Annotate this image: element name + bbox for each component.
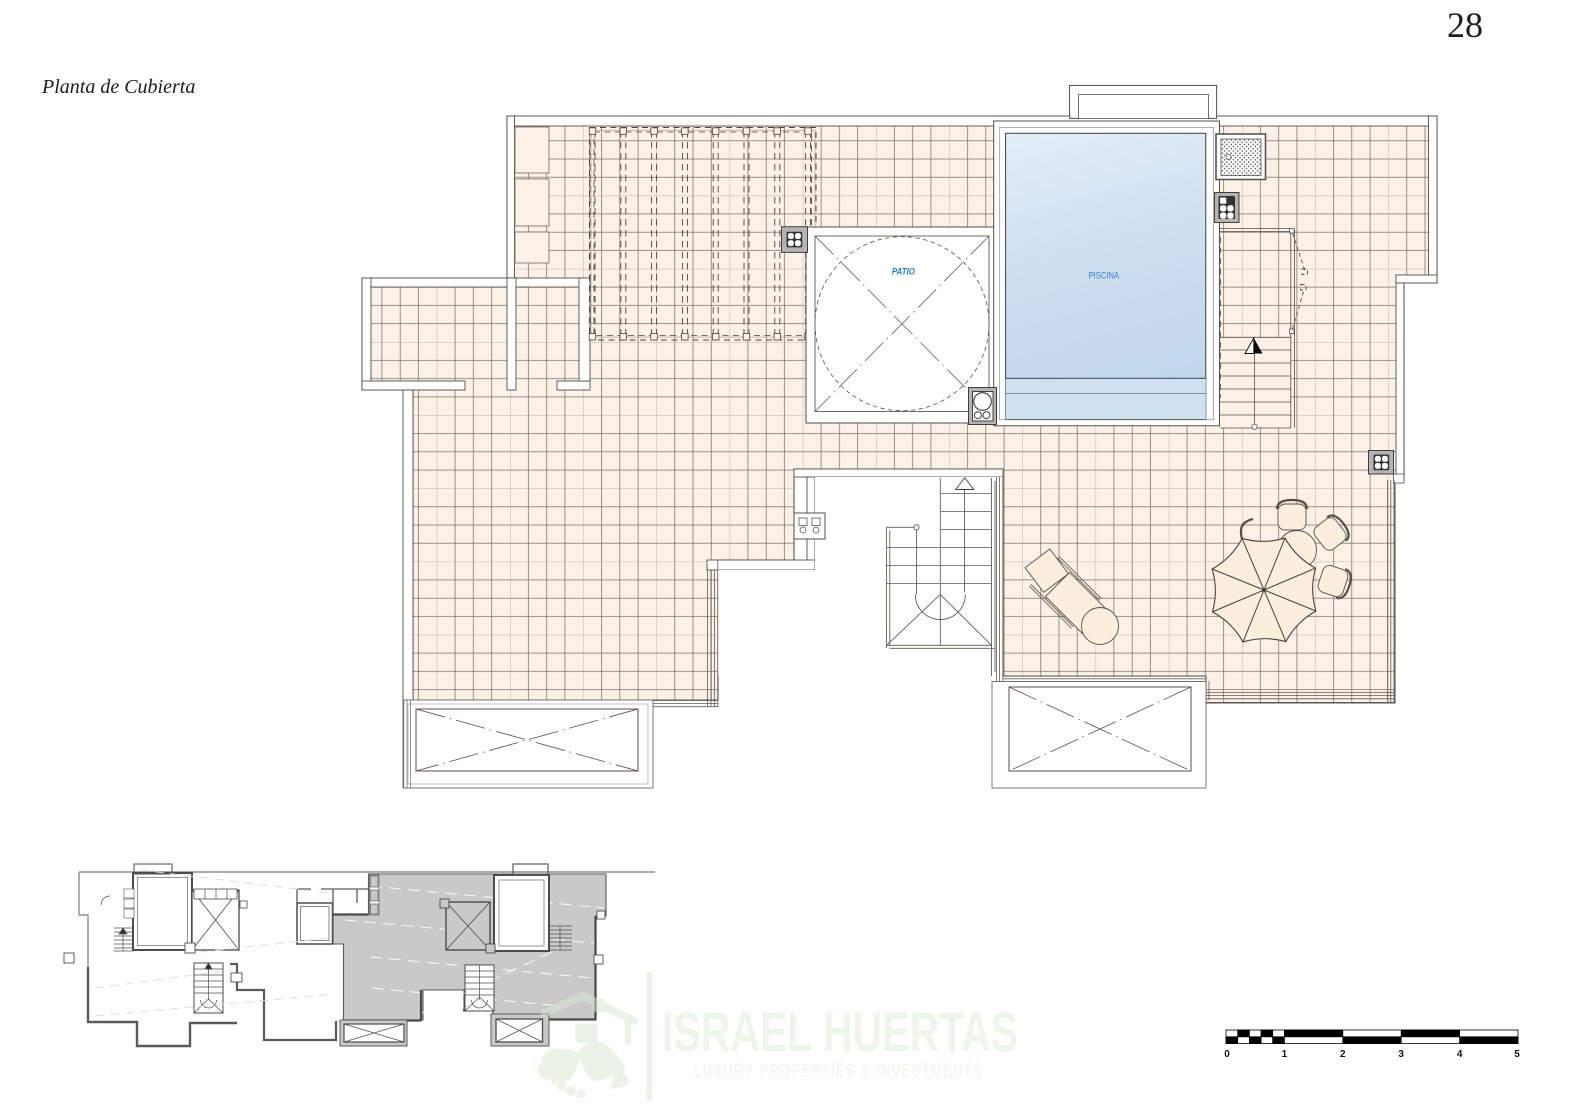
- svg-text:PATIO: PATIO: [892, 267, 916, 278]
- svg-text:1: 1: [1282, 1049, 1288, 1060]
- svg-text:28: 28: [1447, 5, 1483, 45]
- svg-text:PISCINA: PISCINA: [1089, 271, 1120, 282]
- svg-text:2: 2: [1340, 1049, 1346, 1060]
- svg-text:4: 4: [1457, 1049, 1463, 1060]
- svg-text:5: 5: [1514, 1049, 1520, 1060]
- svg-text:0: 0: [1224, 1049, 1230, 1060]
- svg-text:Planta de Cubierta: Planta de Cubierta: [41, 76, 195, 98]
- svg-text:ISRAEL HUERTAS: ISRAEL HUERTAS: [662, 1000, 1018, 1063]
- svg-text:LUXURY PROPERTIES & INVESTMENT: LUXURY PROPERTIES & INVESTMENTS: [694, 1060, 983, 1082]
- svg-text:3: 3: [1398, 1049, 1404, 1060]
